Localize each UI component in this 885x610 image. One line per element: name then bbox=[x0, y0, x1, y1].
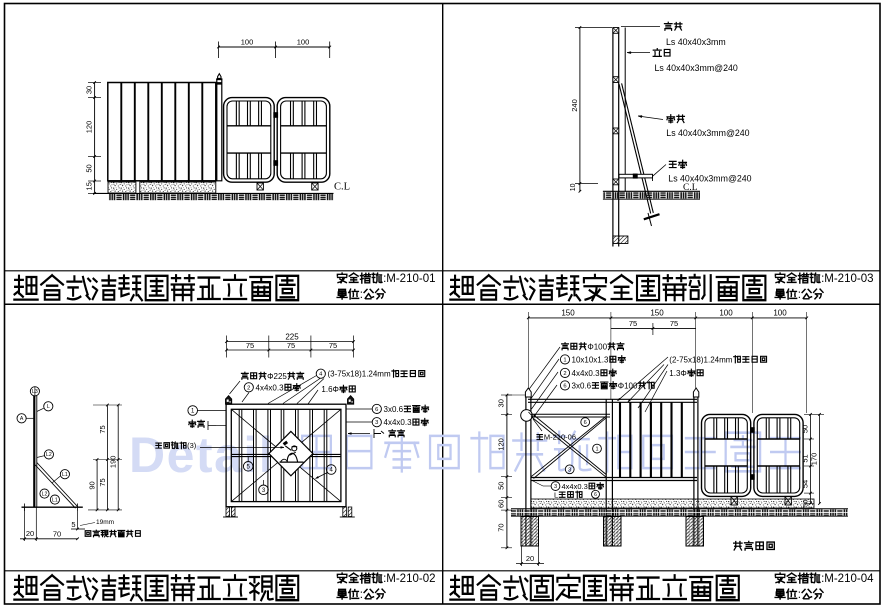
svg-text:Ls 40x40x3mm@240: Ls 40x40x3mm@240 bbox=[668, 174, 751, 184]
svg-text:Φ100: Φ100 bbox=[587, 342, 607, 351]
svg-text:6: 6 bbox=[375, 407, 378, 413]
svg-text:100: 100 bbox=[773, 308, 787, 317]
svg-text:C.L: C.L bbox=[683, 183, 698, 193]
svg-text:C.L: C.L bbox=[334, 182, 350, 193]
svg-text:2: 2 bbox=[563, 371, 566, 377]
svg-text:75: 75 bbox=[98, 425, 107, 433]
svg-text:6: 6 bbox=[563, 383, 566, 389]
svg-text:50: 50 bbox=[497, 482, 506, 490]
svg-text::M-210-04: :M-210-04 bbox=[821, 573, 874, 585]
svg-text:75: 75 bbox=[98, 478, 107, 486]
svg-text:6: 6 bbox=[584, 420, 587, 426]
svg-text:30: 30 bbox=[497, 399, 506, 407]
svg-text:50: 50 bbox=[802, 499, 809, 507]
svg-text:240: 240 bbox=[570, 99, 579, 112]
svg-text:100: 100 bbox=[241, 38, 254, 47]
svg-text:75: 75 bbox=[287, 341, 295, 350]
svg-text:4x4x0.3: 4x4x0.3 bbox=[256, 383, 285, 392]
svg-text:A: A bbox=[20, 416, 24, 422]
svg-text::: : bbox=[798, 589, 801, 601]
svg-text:Detail: Detail bbox=[129, 427, 274, 483]
svg-text:190: 190 bbox=[109, 456, 118, 469]
svg-text:L: L bbox=[554, 490, 558, 499]
svg-text:1: 1 bbox=[563, 357, 566, 363]
svg-text:Ls 40x40x3mm: Ls 40x40x3mm bbox=[666, 37, 726, 47]
svg-text:(3): (3) bbox=[187, 441, 197, 450]
svg-text:L: L bbox=[47, 404, 50, 410]
svg-text:L3: L3 bbox=[32, 389, 38, 395]
svg-text:75: 75 bbox=[329, 341, 337, 350]
svg-text:3x0.6: 3x0.6 bbox=[384, 405, 404, 414]
svg-text::M-210-02: :M-210-02 bbox=[383, 573, 435, 585]
svg-text:50: 50 bbox=[85, 164, 94, 172]
svg-text:19mm: 19mm bbox=[96, 519, 114, 526]
svg-text:120: 120 bbox=[497, 438, 506, 451]
svg-text:60: 60 bbox=[497, 500, 506, 508]
svg-text:3: 3 bbox=[375, 420, 378, 426]
svg-text:4x4x0.3: 4x4x0.3 bbox=[572, 369, 601, 378]
svg-text:70: 70 bbox=[53, 530, 61, 539]
svg-text:6: 6 bbox=[594, 492, 597, 498]
svg-text:75: 75 bbox=[246, 341, 254, 350]
svg-text:100: 100 bbox=[297, 38, 310, 47]
svg-text:51: 51 bbox=[800, 454, 809, 462]
svg-text:Ls 40x40x3mm@240: Ls 40x40x3mm@240 bbox=[666, 128, 749, 138]
svg-text::: : bbox=[798, 289, 801, 301]
svg-text:L1: L1 bbox=[62, 472, 68, 478]
svg-text:75: 75 bbox=[670, 319, 678, 328]
svg-text:20: 20 bbox=[26, 529, 34, 538]
svg-text:(2-75x18)1.24mm: (2-75x18)1.24mm bbox=[669, 355, 732, 364]
svg-text:170: 170 bbox=[810, 453, 819, 466]
svg-text:3x0.6: 3x0.6 bbox=[572, 381, 592, 390]
svg-text::: : bbox=[360, 289, 363, 301]
svg-text:Φ225: Φ225 bbox=[267, 372, 287, 381]
svg-text:54: 54 bbox=[800, 480, 809, 488]
svg-text:10x10x1.3: 10x10x1.3 bbox=[572, 355, 609, 364]
svg-text:5: 5 bbox=[71, 520, 75, 529]
svg-text:L2: L2 bbox=[46, 452, 52, 458]
svg-text::: : bbox=[360, 589, 363, 601]
svg-text:20: 20 bbox=[526, 554, 534, 563]
svg-text:M-210-06: M-210-06 bbox=[544, 433, 576, 442]
svg-text:4x4x0.3: 4x4x0.3 bbox=[562, 482, 588, 491]
svg-text:(3-75x18)1.24mm: (3-75x18)1.24mm bbox=[328, 370, 391, 379]
svg-text:150: 150 bbox=[650, 308, 664, 317]
svg-text:30: 30 bbox=[85, 86, 94, 94]
svg-text:3: 3 bbox=[554, 484, 557, 490]
svg-text:120: 120 bbox=[85, 121, 94, 134]
svg-text:Ls 40x40x3mm@240: Ls 40x40x3mm@240 bbox=[655, 63, 738, 73]
svg-text:L1: L1 bbox=[52, 497, 58, 503]
svg-text::M-210-01: :M-210-01 bbox=[383, 273, 435, 285]
svg-text::M-210-03: :M-210-03 bbox=[821, 273, 873, 285]
svg-text:4x4x0.3: 4x4x0.3 bbox=[384, 418, 413, 427]
svg-text:1.6Φ: 1.6Φ bbox=[321, 385, 339, 394]
svg-text:100: 100 bbox=[719, 308, 733, 317]
svg-text:150: 150 bbox=[561, 308, 575, 317]
svg-text:1.3Φ: 1.3Φ bbox=[669, 369, 687, 378]
svg-text:75: 75 bbox=[629, 319, 637, 328]
svg-text:90: 90 bbox=[88, 481, 97, 489]
svg-text:15: 15 bbox=[85, 182, 94, 190]
svg-text:2: 2 bbox=[247, 385, 250, 391]
svg-text:1: 1 bbox=[595, 447, 598, 453]
svg-text:3: 3 bbox=[568, 467, 571, 473]
svg-text:L2: L2 bbox=[42, 491, 48, 497]
svg-text:70: 70 bbox=[497, 523, 506, 531]
svg-text:50: 50 bbox=[800, 425, 809, 433]
svg-text:10: 10 bbox=[570, 183, 577, 191]
